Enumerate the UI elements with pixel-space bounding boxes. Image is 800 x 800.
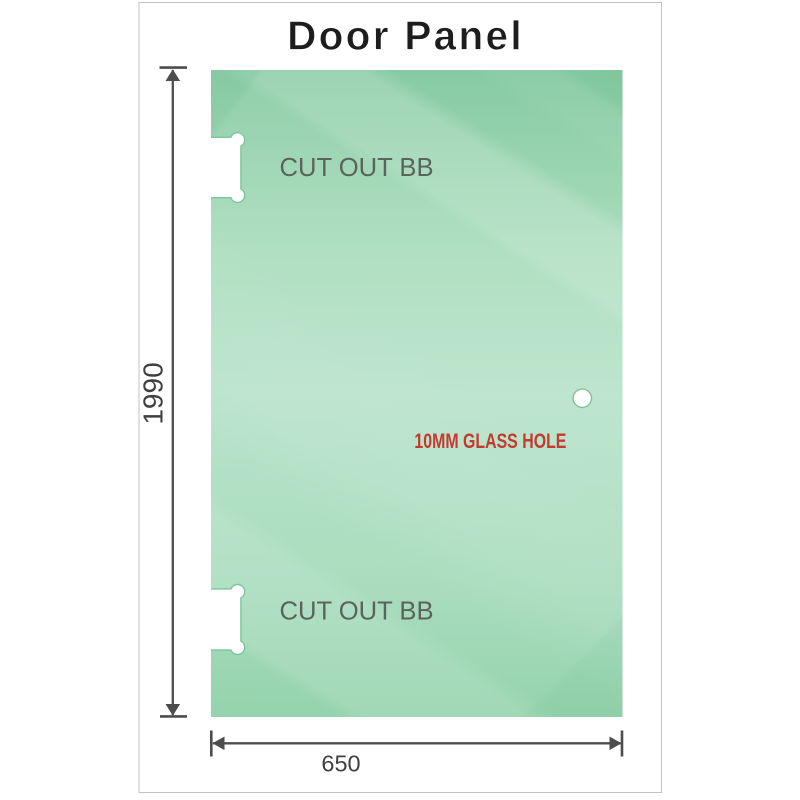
svg-text:Door Panel: Door Panel: [287, 12, 524, 58]
svg-text:CUT OUT BB: CUT OUT BB: [280, 154, 434, 182]
svg-text:10MM GLASS HOLE: 10MM GLASS HOLE: [414, 430, 566, 454]
svg-text:650: 650: [321, 751, 360, 777]
svg-text:1990: 1990: [138, 362, 169, 424]
svg-text:CUT OUT BB: CUT OUT BB: [280, 598, 434, 626]
